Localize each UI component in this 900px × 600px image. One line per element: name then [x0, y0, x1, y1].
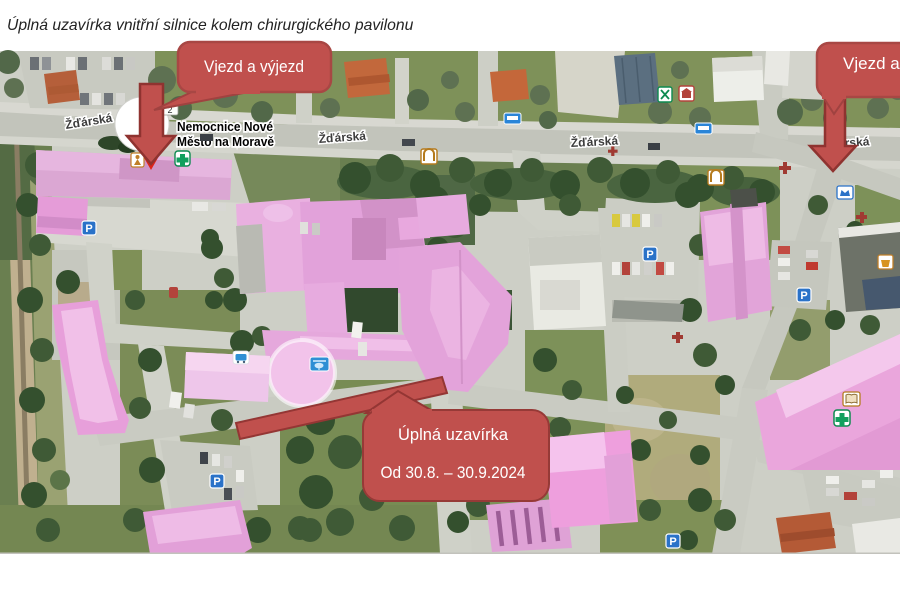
svg-text:Město na Moravě: Město na Moravě — [177, 134, 274, 149]
svg-text:P: P — [213, 476, 220, 488]
svg-text:P: P — [669, 536, 676, 548]
svg-text:Vjezd a výjezd: Vjezd a výjezd — [843, 54, 900, 73]
svg-text:Nemocnice Nové: Nemocnice Nové — [177, 119, 273, 134]
svg-text:P: P — [85, 223, 92, 235]
svg-text:P: P — [800, 290, 807, 302]
svg-text:P: P — [646, 249, 653, 261]
svg-text:Vjezd a výjezd: Vjezd a výjezd — [204, 57, 304, 76]
svg-text:Úplná uzavírka: Úplná uzavírka — [398, 425, 509, 444]
svg-text:Úplná uzavírka vnitřní silnice: Úplná uzavírka vnitřní silnice kolem chi… — [7, 15, 414, 34]
svg-text:Od 30.8. – 30.9.2024: Od 30.8. – 30.9.2024 — [381, 464, 526, 482]
